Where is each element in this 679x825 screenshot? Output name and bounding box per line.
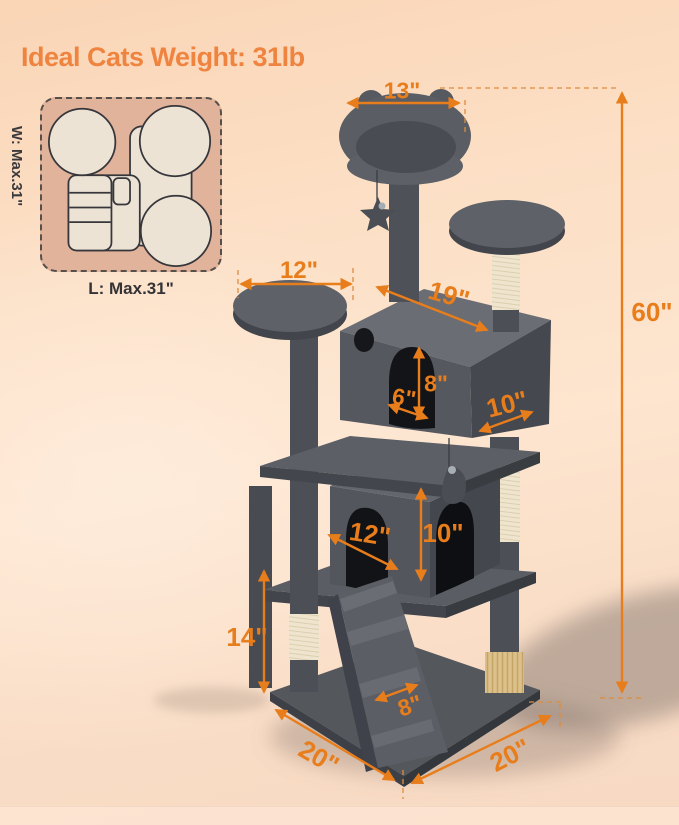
dim-lower-condo-height: 10": [422, 520, 463, 546]
rear-left-post: [249, 486, 272, 688]
footprint-width-label: W: Max.31": [8, 126, 25, 274]
dim-upper-platform-width: 12": [280, 259, 318, 283]
footprint-length-label: L: Max.31": [40, 279, 222, 299]
dim-door-width: 6": [390, 385, 417, 412]
left-platform: [233, 280, 347, 340]
left-post: [289, 326, 319, 692]
dim-top-perch-width: 13": [384, 80, 421, 103]
dim-door-height: 8": [424, 373, 448, 396]
dim-lower-condo-width: 12": [348, 518, 393, 550]
footprint-diagram: [42, 99, 220, 270]
right-platform: [449, 200, 565, 255]
footprint-inset: [40, 97, 222, 272]
page-title: Ideal Cats Weight: 31lb: [21, 42, 305, 73]
floor-edge: [0, 806, 679, 825]
product-dimension-diagram: Ideal Cats Weight: 31lb W: Max.31" L: Ma…: [0, 0, 679, 825]
dim-lower-section-height: 14": [226, 624, 267, 650]
dim-total-height: 60": [631, 299, 672, 325]
